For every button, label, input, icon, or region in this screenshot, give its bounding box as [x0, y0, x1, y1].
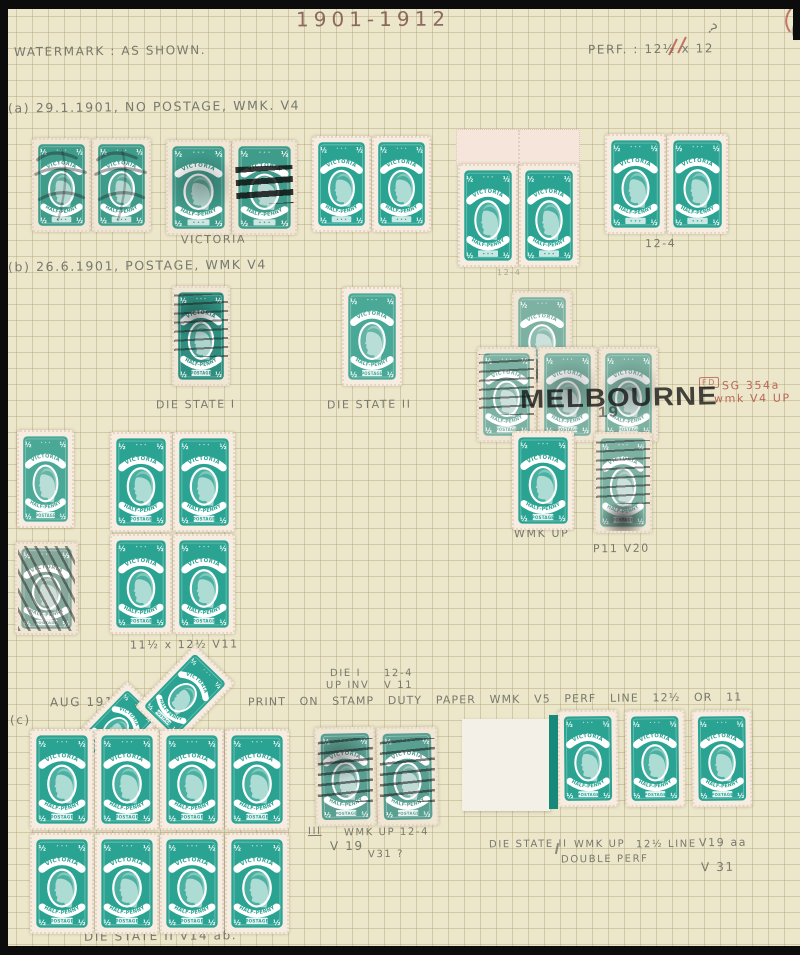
svg-text:½: ½: [520, 441, 527, 450]
svg-text:½: ½: [25, 441, 32, 449]
pencil-label: (a) 29.1.1901, NO POSTAGE, WMK. V4: [8, 97, 300, 115]
scan-border-left: [0, 0, 8, 955]
svg-text:½: ½: [23, 552, 30, 560]
svg-text:½: ½: [273, 739, 281, 748]
svg-text:½: ½: [103, 739, 111, 748]
svg-text:½: ½: [168, 843, 176, 852]
svg-text:½: ½: [168, 918, 176, 927]
svg-text:½: ½: [273, 918, 281, 927]
svg-text:POSTAGE: POSTAGE: [35, 620, 58, 625]
svg-text:POSTAGE: POSTAGE: [50, 815, 73, 820]
svg-text:½: ½: [520, 514, 527, 523]
svg-text:POSTAGE: POSTAGE: [335, 810, 357, 815]
svg-text:½: ½: [503, 174, 510, 183]
svg-text:½: ½: [387, 298, 394, 306]
stamp-pair-c-used: ½ ½ VICTORIA HALF-PENNY ½ ½ POSTAGE: [376, 726, 439, 826]
svg-text:½: ½: [713, 219, 720, 227]
scan-border-right: [793, 0, 800, 40]
svg-text:½: ½: [62, 620, 69, 628]
svg-text:½: ½: [380, 217, 387, 225]
svg-text:½: ½: [324, 811, 331, 819]
stamp-pair-a-margin: ½ ½ VICTORIA HALF-PENNY ½ ½: [458, 164, 518, 267]
sheet-margin-tab: [456, 129, 580, 167]
sheet-margin-piece: [462, 719, 550, 811]
svg-text:½: ½: [273, 843, 281, 852]
svg-text:POSTAGE: POSTAGE: [397, 810, 419, 815]
svg-text:½: ½: [360, 737, 367, 745]
svg-text:½: ½: [23, 620, 30, 628]
svg-text:½: ½: [485, 427, 492, 435]
svg-text:½: ½: [361, 810, 368, 818]
svg-text:½: ½: [520, 301, 527, 309]
stamp-block-of-8: ½ ½ VICTORIA HALF-PENNY ½ ½ POSTAGE: [160, 833, 224, 934]
stamp-pair-a-mint-2: ½ ½ VICTORIA HALF-PENNY ½ ½: [605, 134, 666, 234]
svg-text:½: ½: [208, 918, 216, 927]
svg-text:½: ½: [215, 371, 222, 379]
svg-text:½: ½: [76, 217, 83, 225]
svg-text:½: ½: [320, 217, 327, 225]
svg-text:½: ½: [466, 250, 473, 259]
svg-text:POSTAGE: POSTAGE: [712, 792, 734, 797]
page-title: 1901-1912: [296, 7, 450, 32]
svg-text:½: ½: [634, 792, 641, 800]
svg-text:½: ½: [607, 357, 614, 365]
svg-text:POSTAGE: POSTAGE: [645, 792, 667, 797]
stamp-block-of-8: ½ ½ VICTORIA HALF-PENNY ½ ½ POSTAGE: [95, 833, 159, 934]
svg-text:½: ½: [168, 739, 176, 748]
svg-text:½: ½: [737, 792, 744, 800]
svg-text:½: ½: [233, 843, 241, 852]
pencil-label: WMK UP: [574, 839, 625, 851]
pencil-label: (c): [10, 713, 31, 727]
svg-text:½: ½: [241, 219, 249, 228]
pencil-label: wmk V4 UP: [714, 392, 791, 406]
svg-text:POSTAGE: POSTAGE: [361, 371, 383, 376]
svg-text:½: ½: [215, 297, 222, 305]
svg-text:½: ½: [175, 150, 183, 159]
svg-text:½: ½: [582, 427, 589, 435]
svg-text:½: ½: [40, 148, 47, 156]
svg-text:½: ½: [136, 148, 143, 156]
pencil-label: P11 V20: [593, 542, 650, 556]
stamp-pair-a-mint-1: ½ ½ VICTORIA HALF-PENNY ½ ½: [372, 136, 431, 232]
pencil-label: (b) 26.6.1901, POSTAGE, WMK V4: [8, 257, 267, 275]
svg-text:½: ½: [423, 810, 430, 818]
stamp-pair-a-mint-2: ½ ½ VICTORIA HALF-PENNY ½ ½: [667, 134, 728, 234]
stamp-single-b-used: ½ ½ VICTORIA HALF-PENNY ½ ½ POSTAGE: [15, 542, 78, 635]
svg-text:POSTAGE: POSTAGE: [180, 919, 203, 924]
svg-text:½: ½: [136, 217, 143, 225]
pencil-label: SG 354a: [722, 379, 780, 393]
svg-text:½: ½: [737, 720, 744, 728]
svg-text:½: ½: [385, 738, 392, 746]
svg-text:½: ½: [156, 544, 163, 553]
stamp-block-of-8: ½ ½ VICTORIA HALF-PENNY ½ ½ POSTAGE: [95, 729, 159, 830]
pencil-label: V 31: [701, 860, 735, 874]
svg-text:POSTAGE: POSTAGE: [532, 515, 554, 520]
pencil-label: 11½ x 12½ V11: [130, 637, 239, 651]
svg-text:½: ½: [118, 516, 125, 525]
pencil-label: 12-4: [645, 237, 677, 250]
pencil-label: 12-4: [497, 268, 522, 277]
svg-text:POSTAGE: POSTAGE: [193, 517, 215, 522]
stamp-block-of-8: ½ ½ VICTORIA HALF-PENNY ½ ½ POSTAGE: [160, 729, 224, 830]
svg-text:½: ½: [546, 357, 553, 365]
stamp-pair-a-used-1: ½ ½ VICTORIA HALF-PENNY ½ ½: [92, 138, 151, 232]
stamp-strip-of-3: ½ ½ VICTORIA HALF-PENNY ½ ½ POSTAGE: [692, 710, 753, 808]
svg-text:POSTAGE: POSTAGE: [613, 517, 634, 522]
svg-text:½: ½: [181, 618, 188, 627]
svg-text:½: ½: [156, 618, 163, 627]
svg-text:½: ½: [637, 443, 644, 451]
svg-text:½: ½: [387, 371, 394, 379]
svg-text:½: ½: [143, 843, 151, 852]
pencil-label: UP INV: [326, 680, 370, 691]
svg-text:½: ½: [602, 443, 609, 451]
svg-text:½: ½: [558, 441, 565, 450]
stamp-pair-a-used-1: ½ ½ VICTORIA HALF-PENNY ½ ½: [32, 138, 91, 232]
svg-text:½: ½: [350, 298, 357, 306]
svg-text:½: ½: [208, 739, 216, 748]
svg-text:POSTAGE: POSTAGE: [130, 619, 152, 624]
stamp-block-of-4: ½ ½ VICTORIA HALF-PENNY ½ ½ POSTAGE: [110, 534, 172, 634]
svg-text:½: ½: [233, 814, 241, 823]
svg-text:½: ½: [100, 148, 107, 156]
svg-text:POSTAGE: POSTAGE: [50, 919, 73, 924]
stamp-pair-c-used: ½ ½ VICTORIA HALF-PENNY ½ ½ POSTAGE: [314, 726, 377, 826]
stamp-pair-a-margin: ½ ½ VICTORIA HALF-PENNY ½ ½: [519, 164, 579, 267]
svg-text:½: ½: [181, 516, 188, 525]
svg-text:½: ½: [143, 918, 151, 927]
svg-text:½: ½: [181, 544, 188, 553]
svg-text:½: ½: [643, 357, 650, 365]
pencil-label: PRINT ON STAMP DUTY PAPER WMK V5 PERF LI…: [248, 690, 742, 708]
stamp-block-of-8: ½ ½ VICTORIA HALF-PENNY ½ ½ POSTAGE: [225, 729, 289, 830]
svg-text:½: ½: [143, 814, 151, 823]
stamp-single-die-state-2: ½ ½ VICTORIA HALF-PENNY ½ ½ POSTAGE: [342, 287, 402, 386]
svg-text:½: ½: [356, 146, 363, 154]
svg-text:½: ½: [564, 174, 571, 183]
svg-text:½: ½: [380, 146, 387, 154]
svg-text:POSTAGE: POSTAGE: [578, 792, 600, 797]
svg-text:½: ½: [633, 721, 640, 729]
svg-text:½: ½: [422, 737, 429, 745]
svg-text:½: ½: [416, 146, 423, 154]
svg-text:½: ½: [78, 918, 86, 927]
stamp-block-of-8: ½ ½ VICTORIA HALF-PENNY ½ ½ POSTAGE: [225, 833, 289, 934]
scan-border-top: [0, 0, 800, 9]
svg-text:½: ½: [416, 217, 423, 225]
svg-text:½: ½: [567, 792, 574, 800]
svg-text:½: ½: [603, 792, 610, 800]
margin-color-stripe: [549, 715, 558, 809]
stamp-block-of-4: ½ ½ VICTORIA HALF-PENNY ½ ½ POSTAGE: [173, 534, 235, 634]
svg-text:½: ½: [613, 145, 620, 153]
svg-text:½: ½: [118, 442, 125, 451]
stamp-cluster-bottom-used: ½ ½ VICTORIA HALF-PENNY ½ ½ POSTAGE: [594, 432, 652, 533]
svg-text:½: ½: [582, 357, 589, 365]
svg-text:½: ½: [637, 518, 644, 526]
svg-text:½: ½: [241, 150, 249, 159]
svg-text:½: ½: [670, 792, 677, 800]
svg-text:POSTAGE: POSTAGE: [193, 619, 215, 624]
pencil-label: III: [308, 826, 322, 837]
svg-text:½: ½: [143, 739, 151, 748]
stamp-block-of-8: ½ ½ VICTORIA HALF-PENNY ½ ½ POSTAGE: [30, 729, 94, 830]
svg-text:POSTAGE: POSTAGE: [130, 517, 152, 522]
svg-text:½: ½: [527, 250, 534, 259]
svg-text:½: ½: [521, 357, 528, 365]
svg-text:½: ½: [59, 513, 66, 521]
svg-text:½: ½: [670, 720, 677, 728]
svg-text:½: ½: [100, 217, 107, 225]
svg-text:POSTAGE: POSTAGE: [115, 919, 138, 924]
stamp-pair-a-mint-1: ½ ½ VICTORIA HALF-PENNY ½ ½: [312, 136, 371, 232]
svg-text:½: ½: [175, 219, 183, 228]
stamp-single-die-state-1: ½ ½ VICTORIA HALF-PENNY ½ ½ POSTAGE: [172, 286, 230, 386]
svg-text:½: ½: [181, 442, 188, 451]
svg-text:½: ½: [38, 918, 46, 927]
svg-text:½: ½: [557, 301, 564, 309]
svg-text:POSTAGE: POSTAGE: [180, 815, 203, 820]
svg-text:½: ½: [386, 811, 393, 819]
svg-text:½: ½: [566, 721, 573, 729]
svg-text:½: ½: [219, 516, 226, 525]
svg-text:½: ½: [233, 918, 241, 927]
svg-text:½: ½: [219, 544, 226, 553]
svg-text:POSTAGE: POSTAGE: [191, 370, 212, 375]
scan-border-bottom: [0, 946, 800, 955]
svg-text:POSTAGE: POSTAGE: [35, 513, 55, 518]
svg-text:½: ½: [215, 219, 223, 228]
svg-text:½: ½: [273, 814, 281, 823]
pencil-label: V 19: [330, 839, 364, 853]
pencil-label: V 11: [384, 680, 413, 691]
svg-text:½: ½: [118, 544, 125, 553]
pencil-label: DIE STATE I: [156, 398, 236, 412]
svg-text:½: ½: [78, 814, 86, 823]
svg-text:½: ½: [675, 145, 682, 153]
svg-text:½: ½: [701, 792, 708, 800]
pencil-label: PERF. : 12½ x 12: [588, 41, 714, 56]
svg-text:½: ½: [564, 250, 571, 259]
svg-text:½: ½: [25, 513, 32, 521]
svg-text:½: ½: [215, 150, 223, 159]
svg-text:½: ½: [233, 739, 241, 748]
stamp-block-of-4: ½ ½ VICTORIA HALF-PENNY ½ ½ POSTAGE: [173, 432, 235, 532]
stamp-block-of-4: ½ ½ VICTORIA HALF-PENNY ½ ½ POSTAGE: [110, 432, 172, 532]
svg-text:½: ½: [675, 219, 682, 227]
svg-text:½: ½: [219, 618, 226, 627]
svg-text:½: ½: [350, 371, 357, 379]
svg-text:½: ½: [602, 518, 609, 526]
svg-text:½: ½: [219, 442, 226, 451]
pencil-label: DIE I: [330, 668, 361, 679]
pencil-label: WATERMARK : AS SHOWN.: [14, 43, 206, 59]
svg-text:½: ½: [103, 918, 111, 927]
svg-text:½: ½: [40, 217, 47, 225]
stamp-single-b-mint: ½ ½ VICTORIA HALF-PENNY ½ ½ POSTAGE: [17, 430, 74, 528]
svg-text:½: ½: [700, 721, 707, 729]
svg-text:½: ½: [281, 150, 289, 159]
stamp-block-of-8: ½ ½ VICTORIA HALF-PENNY ½ ½ POSTAGE: [30, 833, 94, 934]
svg-text:½: ½: [527, 174, 534, 183]
svg-text:½: ½: [603, 720, 610, 728]
svg-text:½: ½: [713, 145, 720, 153]
svg-text:½: ½: [503, 250, 510, 259]
svg-text:½: ½: [38, 843, 46, 852]
pencil-label: WMK UP 12-4: [344, 827, 429, 839]
svg-text:POSTAGE: POSTAGE: [115, 815, 138, 820]
svg-text:½: ½: [59, 441, 66, 449]
svg-text:½: ½: [168, 814, 176, 823]
stamp-pair-a-used-2: ½ ½ VICTORIA HALF-PENNY ½ ½: [232, 140, 297, 235]
svg-text:½: ½: [208, 814, 216, 823]
svg-text:½: ½: [651, 219, 658, 227]
svg-text:½: ½: [323, 738, 330, 746]
svg-text:½: ½: [208, 843, 216, 852]
album-page: 1901-1912 WATERMARK : AS SHOWN.PERF. : 1…: [0, 0, 800, 955]
svg-text:½: ½: [38, 814, 46, 823]
svg-text:½: ½: [103, 814, 111, 823]
svg-text:½: ½: [558, 514, 565, 523]
stamp-strip-of-3: ½ ½ VICTORIA HALF-PENNY ½ ½ POSTAGE: [558, 710, 619, 808]
svg-text:½: ½: [103, 843, 111, 852]
svg-text:POSTAGE: POSTAGE: [245, 815, 268, 820]
svg-text:½: ½: [156, 442, 163, 451]
svg-text:½: ½: [180, 371, 187, 379]
svg-text:½: ½: [38, 739, 46, 748]
svg-text:½: ½: [76, 148, 83, 156]
svg-text:½: ½: [466, 174, 473, 183]
svg-text:½: ½: [180, 297, 187, 305]
pencil-label: V19 aa: [699, 836, 747, 850]
pencil-label: 12½ LINE: [636, 839, 697, 851]
svg-text:½: ½: [78, 843, 86, 852]
svg-text:½: ½: [356, 217, 363, 225]
pencil-label: DIE STATE II: [327, 398, 412, 412]
svg-text:POSTAGE: POSTAGE: [245, 919, 268, 924]
svg-text:½: ½: [485, 357, 492, 365]
svg-text:½: ½: [651, 145, 658, 153]
svg-text:½: ½: [281, 219, 289, 228]
pencil-label: ?: [704, 21, 721, 39]
cancel-fragment-text: 19: [598, 404, 619, 421]
stamp-pair-a-used-2: ½ ½ VICTORIA HALF-PENNY ½ ½: [166, 140, 231, 235]
svg-text:½: ½: [78, 739, 86, 748]
svg-text:½: ½: [613, 219, 620, 227]
stamp-strip-of-3: ½ ½ VICTORIA HALF-PENNY ½ ½ POSTAGE: [625, 710, 686, 808]
pencil-label: V31 ?: [368, 849, 404, 860]
svg-text:½: ½: [320, 146, 327, 154]
svg-text:½: ½: [118, 618, 125, 627]
stamp-cluster-bottom-mint: ½ ½ VICTORIA HALF-PENNY ½ ½ POSTAGE: [512, 431, 574, 530]
svg-text:½: ½: [62, 552, 69, 560]
pencil-label: DOUBLE PERF: [561, 854, 649, 866]
svg-text:½: ½: [156, 516, 163, 525]
pencil-label: 12-4: [384, 668, 413, 679]
